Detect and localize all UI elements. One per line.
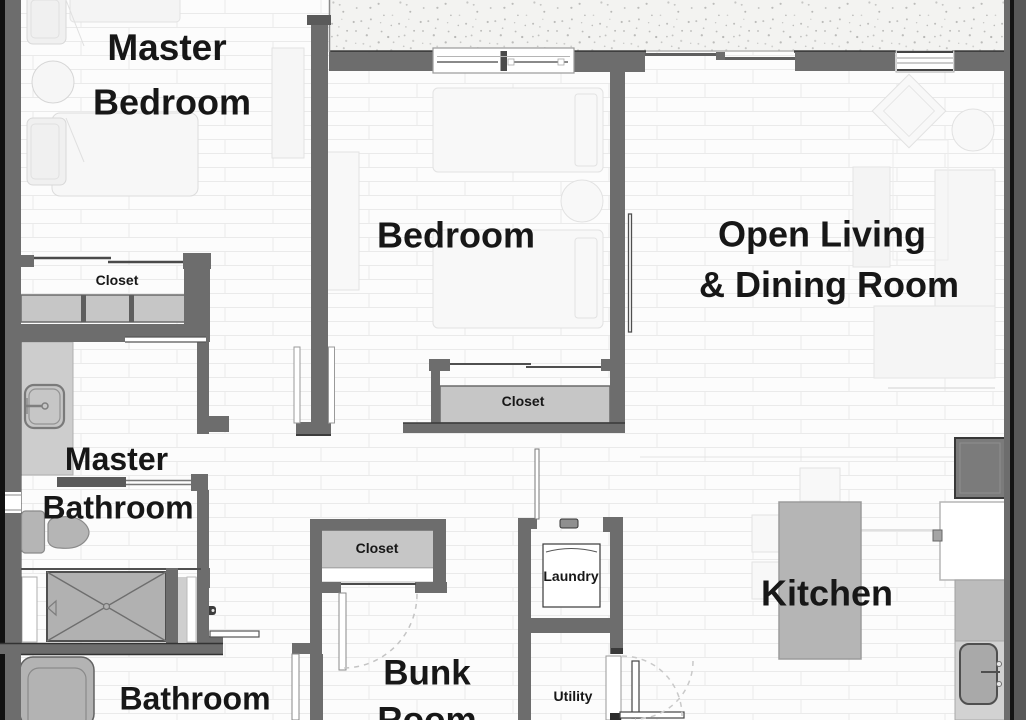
svg-text:Master: Master	[107, 27, 226, 68]
svg-text:Kitchen: Kitchen	[761, 573, 893, 614]
svg-text:Master: Master	[65, 441, 168, 477]
svg-text:Closet: Closet	[356, 540, 399, 556]
svg-text:Closet: Closet	[96, 272, 139, 288]
svg-text:Open Living: Open Living	[718, 214, 926, 255]
svg-text:Utility: Utility	[554, 688, 593, 704]
svg-text:Bedroom: Bedroom	[377, 215, 535, 256]
svg-text:Closet: Closet	[502, 393, 545, 409]
svg-text:& Dining Room: & Dining Room	[699, 264, 959, 305]
svg-text:Bedroom: Bedroom	[93, 82, 251, 123]
svg-text:Bathroom: Bathroom	[119, 681, 270, 717]
svg-text:Bunk: Bunk	[383, 654, 471, 693]
svg-text:Laundry: Laundry	[543, 568, 598, 584]
svg-text:Room: Room	[377, 701, 476, 720]
svg-text:Bathroom: Bathroom	[42, 490, 193, 526]
